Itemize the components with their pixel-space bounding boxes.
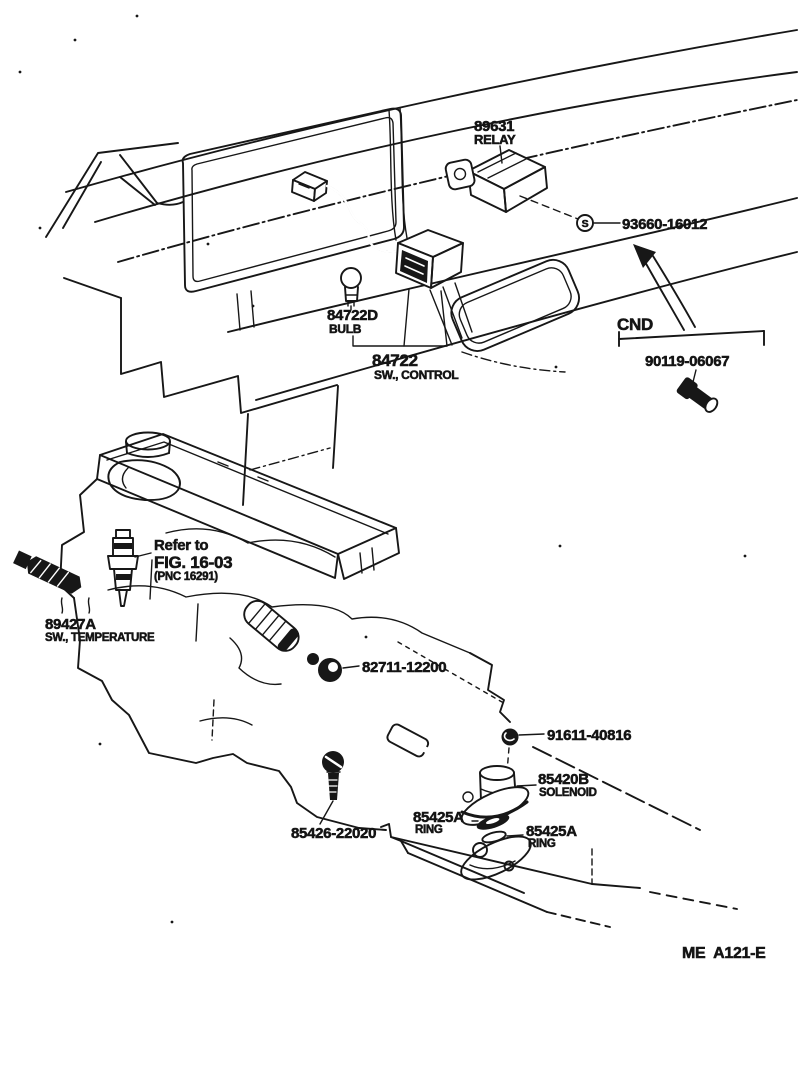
refer-line2-label: FIG. 16-03	[154, 553, 232, 572]
harness-connector-drawing	[292, 172, 403, 252]
cnd-bolt-drawing	[676, 370, 721, 416]
fig-sender-drawing	[108, 530, 151, 606]
cable-drawing	[239, 596, 489, 776]
screw-symbol: S	[582, 218, 589, 230]
bulb-name-label: BULB	[329, 322, 362, 336]
bulb-drawing	[341, 268, 361, 306]
bolt-part-label: 85426-22020	[291, 825, 376, 842]
refer-line1-label: Refer to	[154, 537, 208, 554]
clamp-part-label: 82711-12200	[362, 659, 446, 676]
screw-leader: S	[520, 196, 620, 231]
bolt-drawing	[320, 751, 344, 824]
clamp-drawing	[307, 653, 359, 682]
parts-diagram-page: S	[0, 0, 800, 1082]
temperature-switch-drawing	[12, 549, 90, 613]
relay-name-label: RELAY	[474, 132, 516, 147]
nut-part-label: 91611-40816	[547, 727, 631, 744]
temp-part-label: 89427A	[45, 616, 96, 633]
cnd-label: CND	[617, 315, 653, 334]
cnd-bolt-part-label: 90119-06067	[645, 353, 729, 370]
solenoid-part-label: 85420B	[538, 771, 589, 788]
ring-left-name-label: RING	[415, 824, 443, 836]
refer-line3-label: (PNC 16291)	[154, 571, 218, 583]
figure-code-label: ME A121-E	[682, 945, 766, 962]
parts-diagram: S	[0, 0, 800, 1082]
temp-name-label: SW., TEMPERATURE	[45, 632, 155, 644]
ring-right-name-label: RING	[528, 838, 556, 850]
screw-part-label: 93660-16012	[622, 216, 707, 233]
solenoid-name-label: SOLENOID	[539, 787, 597, 799]
control-name-label: SW., CONTROL	[374, 368, 458, 382]
engine-illustration	[60, 433, 700, 831]
